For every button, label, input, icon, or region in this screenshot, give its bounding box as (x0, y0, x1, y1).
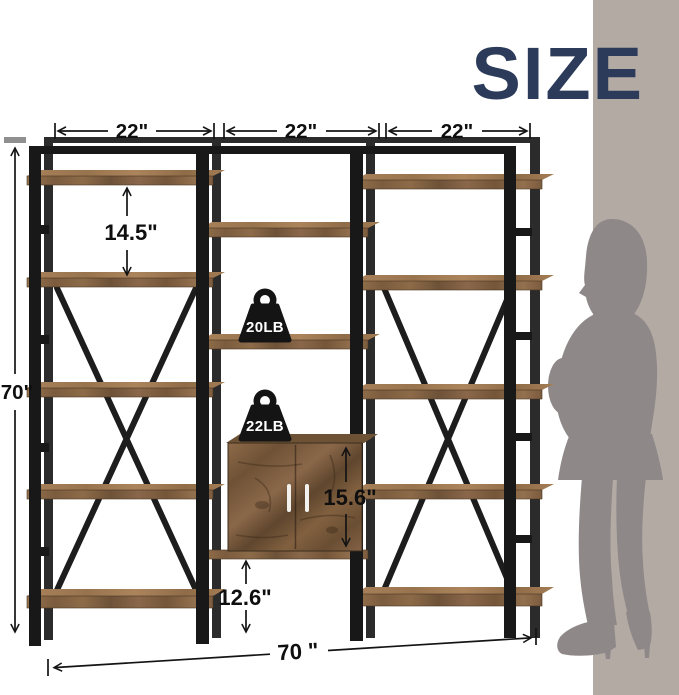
silhouette-arm (548, 358, 578, 414)
dim-label-overall-height: 70" (1, 381, 34, 404)
illustration-canvas: SIZE (0, 0, 679, 695)
dim-label-overall-width: 70 " (277, 638, 320, 666)
silhouette-heel-right (644, 645, 650, 658)
dim-label-shelf-spacing: 14.5" (104, 220, 157, 245)
weight-badge-22lb: 22LB (241, 390, 289, 440)
silhouette-head (579, 219, 647, 319)
x-brace-right (384, 288, 512, 590)
dim-label-width-right: 22" (441, 120, 474, 143)
bookshelf-illustration (27, 137, 554, 646)
height-cap (4, 137, 26, 143)
dim-overall-width: 70 " (48, 628, 536, 676)
dim-label-width-middle: 22" (285, 120, 318, 143)
dim-label-bottom-clearance: 12.6" (218, 585, 271, 610)
cabinet-handle-left (287, 484, 291, 512)
size-infographic: SIZE (0, 0, 679, 695)
x-brace-left (57, 288, 196, 590)
silhouette-skirt (558, 434, 663, 480)
cabinet-handle-right (305, 484, 309, 512)
weight-badge-20lb: 20LB (241, 289, 289, 341)
weight-label-22lb: 22LB (246, 418, 284, 435)
weight-label-20lb: 20LB (246, 319, 284, 336)
page-title: SIZE (472, 32, 644, 115)
dim-label-width-left: 22" (116, 120, 149, 143)
dim-overall-height: 70" (1, 137, 34, 632)
dim-shelf-spacing: 14.5" (104, 188, 157, 275)
dim-bottom-clearance: 12.6" (218, 561, 271, 632)
dim-label-cabinet-height: 15.6" (323, 485, 376, 510)
